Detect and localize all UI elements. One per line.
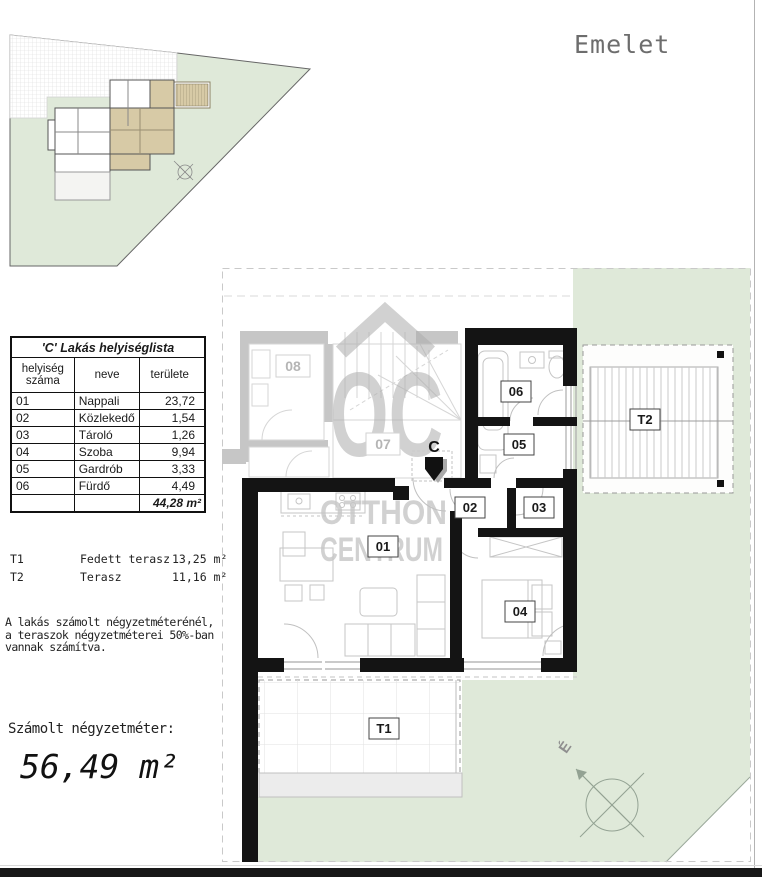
site-plan-thumbnail — [10, 35, 310, 266]
table-row: 05 Gardrób 3,33 — [11, 461, 205, 478]
floor-plan-page: OC OTTHON CENTRUM — [0, 0, 762, 877]
terrace-label-t1: T1 — [369, 718, 399, 739]
col-room-number: helyiség száma — [11, 358, 74, 393]
terrace-code: T1 — [10, 550, 80, 568]
room-table-header: helyiség száma neve területe — [11, 358, 205, 393]
table-row: 02 Közlekedő 1,54 — [11, 410, 205, 427]
terrace-code: T2 — [10, 568, 80, 586]
svg-text:01: 01 — [376, 539, 390, 554]
room-label-05: 05 — [504, 434, 534, 455]
neighbor-label-07: 07 — [366, 433, 400, 455]
terrace-calculation-note: A lakás számolt négyzetméterénél, a tera… — [5, 616, 214, 654]
terrace-name: Terasz — [80, 568, 172, 586]
neighbor-label-08: 08 — [276, 355, 310, 377]
svg-text:04: 04 — [513, 604, 528, 619]
terrace-t1 — [259, 680, 462, 797]
terrace-list: T1 Fedett terasz 13,25 m² T2 Terasz 11,1… — [10, 550, 227, 586]
page-bottom-bar — [0, 868, 762, 877]
room-label-01: 01 — [368, 536, 398, 557]
col-room-area: területe — [140, 358, 205, 393]
room-label-04: 04 — [505, 601, 535, 622]
page-title: Emelet — [574, 30, 670, 59]
room-label-03: 03 — [524, 497, 554, 518]
list-item: T1 Fedett terasz 13,25 m² — [10, 550, 227, 568]
table-row: 06 Fürdő 4,49 — [11, 478, 205, 495]
svg-text:02: 02 — [463, 500, 477, 515]
table-total-row: 44,28 m² — [11, 495, 205, 513]
room-label-02: 02 — [455, 497, 485, 518]
svg-text:06: 06 — [509, 384, 523, 399]
svg-text:03: 03 — [532, 500, 546, 515]
page-bottom-line — [0, 865, 762, 866]
terrace-area: 11,16 m² — [172, 568, 227, 586]
table-row: 04 Szoba 9,94 — [11, 444, 205, 461]
terrace-label-t2: T2 — [630, 409, 660, 430]
total-area: 44,28 m² — [140, 495, 205, 513]
page-right-border — [754, 0, 755, 877]
svg-text:T1: T1 — [376, 721, 391, 736]
room-label-06: 06 — [501, 381, 531, 402]
table-row: 01 Nappali 23,72 — [11, 393, 205, 410]
svg-text:08: 08 — [285, 358, 301, 374]
svg-text:T2: T2 — [637, 412, 652, 427]
svg-text:07: 07 — [375, 436, 391, 452]
table-row: 03 Tároló 1,26 — [11, 427, 205, 444]
calculated-area-value: 56,49 m² — [20, 747, 179, 786]
main-floor-plan: OC OTTHON CENTRUM — [222, 268, 751, 862]
room-table: 'C' Lakás helyiséglista helyiség száma n… — [10, 336, 206, 513]
list-item: T2 Terasz 11,16 m² — [10, 568, 227, 586]
terrace-area: 13,25 m² — [172, 550, 227, 568]
terrace-name: Fedett terasz — [80, 550, 172, 568]
room-table-title: 'C' Lakás helyiséglista — [11, 337, 205, 358]
col-room-name: neve — [74, 358, 140, 393]
unit-c-letter: C — [428, 439, 440, 456]
calculated-area-label: Számolt négyzetméter: — [8, 721, 175, 737]
svg-text:05: 05 — [512, 437, 526, 452]
